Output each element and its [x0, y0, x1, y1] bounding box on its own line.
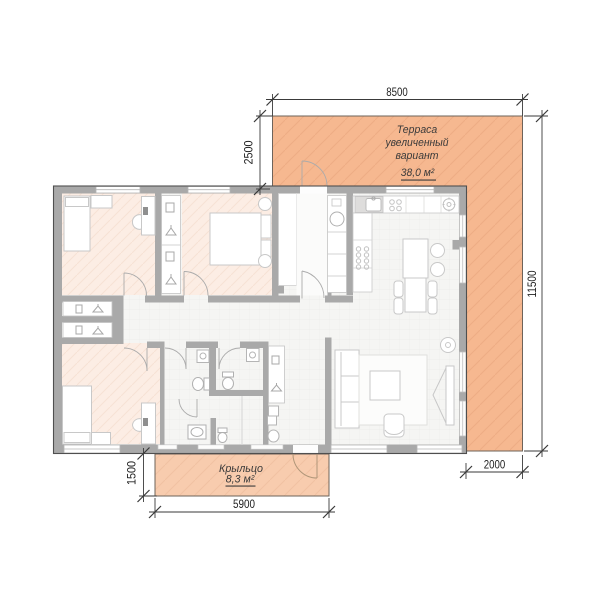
svg-text:2500: 2500 [242, 140, 256, 164]
svg-text:увеличенный: увеличенный [385, 137, 449, 149]
svg-text:8,3 м²: 8,3 м² [226, 474, 255, 486]
svg-text:8500: 8500 [386, 85, 408, 99]
svg-text:11500: 11500 [525, 270, 539, 297]
svg-text:5900: 5900 [233, 497, 255, 511]
svg-text:1500: 1500 [125, 461, 139, 485]
svg-text:2000: 2000 [484, 458, 506, 472]
svg-text:Терраса: Терраса [397, 124, 438, 136]
svg-text:38,0 м²: 38,0 м² [401, 167, 435, 179]
svg-text:вариант: вариант [396, 150, 439, 162]
